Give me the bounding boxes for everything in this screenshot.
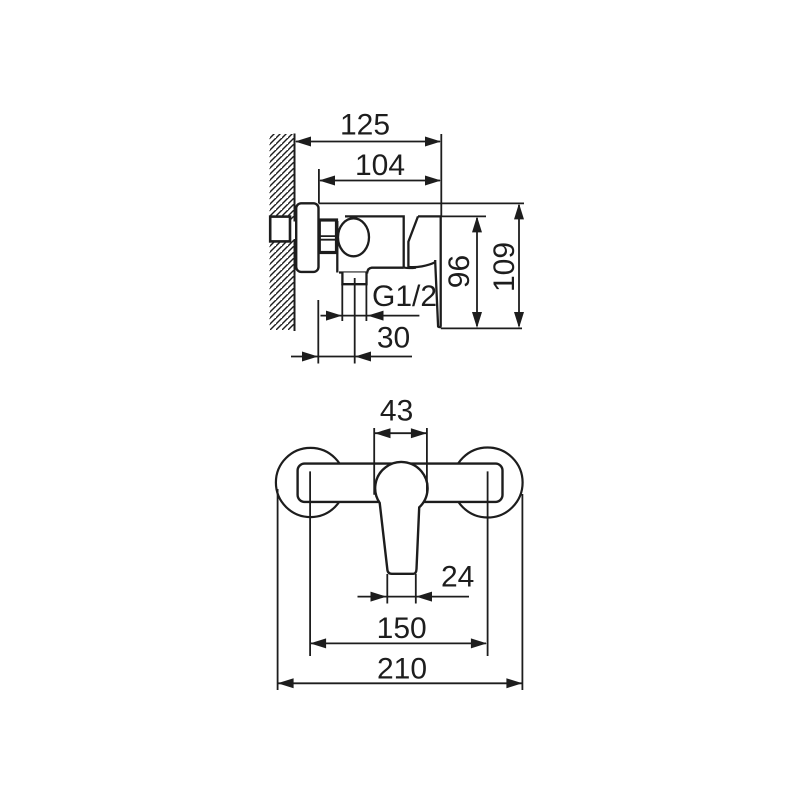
svg-text:210: 210	[377, 653, 427, 686]
svg-text:G1/2: G1/2	[372, 280, 437, 313]
svg-text:150: 150	[377, 612, 427, 645]
svg-text:104: 104	[355, 149, 405, 182]
svg-text:43: 43	[380, 395, 413, 428]
svg-text:125: 125	[340, 108, 390, 141]
svg-text:24: 24	[441, 561, 474, 594]
svg-text:96: 96	[443, 255, 476, 288]
svg-text:30: 30	[377, 322, 410, 355]
svg-text:109: 109	[488, 242, 521, 292]
